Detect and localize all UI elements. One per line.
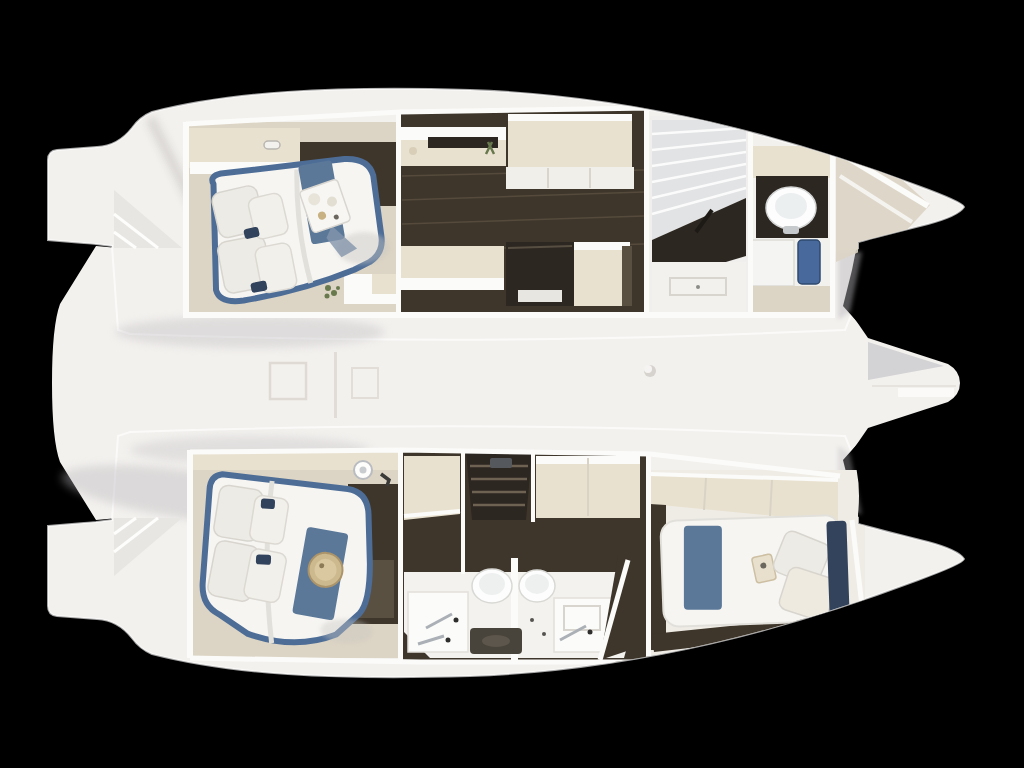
accent-cushion — [256, 554, 272, 565]
shower-room — [650, 116, 748, 314]
toilet-room — [752, 146, 832, 312]
sink-drain — [360, 467, 367, 474]
ceiling-light — [264, 141, 280, 149]
accent-cushion — [261, 498, 276, 509]
wall-stairs — [531, 452, 535, 522]
inner-bottom-wall — [183, 312, 835, 318]
seat-top-edge — [574, 242, 630, 250]
toilet-lid — [775, 193, 807, 219]
catamaran-floorplan-render — [0, 0, 1024, 768]
settee — [506, 167, 634, 189]
bowsprit-step — [898, 388, 954, 397]
toilet-floor — [752, 286, 830, 312]
twin-bathrooms — [402, 452, 650, 662]
wall-corridor-shower — [644, 110, 649, 316]
cabin-bench-top — [372, 274, 400, 294]
faucet-knob — [588, 630, 593, 635]
stair-hatch — [490, 458, 512, 468]
toilet-cabinet — [752, 240, 794, 286]
bed-runner — [684, 526, 722, 610]
wall-cabin-corridor — [396, 112, 401, 318]
desk-seat — [574, 242, 630, 306]
guest-cabin — [190, 452, 400, 658]
sink-drain — [696, 285, 700, 289]
floor-drain — [530, 618, 534, 622]
bathmat-weave — [482, 635, 510, 647]
faucet-knob — [454, 618, 459, 623]
toilet-left-lid — [479, 573, 505, 595]
deck-seam — [334, 352, 337, 418]
faucet-knob — [446, 638, 451, 643]
floorplan-canvas — [0, 0, 1024, 768]
headboard-navy — [826, 521, 849, 616]
wall-corridor — [461, 452, 465, 574]
bottom-hull-interior — [187, 450, 865, 662]
toilet-right-lid — [525, 574, 549, 594]
lower-cabinet-front — [398, 278, 504, 290]
cabin-left-wall — [183, 122, 189, 316]
mast-step-highlight — [644, 365, 652, 373]
cabin-left-wall — [187, 450, 193, 658]
side-cabinet — [508, 121, 632, 167]
blue-mat — [798, 240, 820, 284]
aft-bed — [660, 515, 850, 629]
deck-shadow-forward — [115, 316, 385, 348]
desk-drawer — [518, 290, 562, 302]
lower-cabinet — [398, 246, 504, 282]
toilet-right-wall — [830, 142, 835, 316]
galley-corridor — [398, 110, 646, 318]
wall-shower-toilet — [748, 116, 753, 316]
toilet-hinge — [783, 226, 799, 234]
guest-bed — [200, 474, 380, 649]
floor-drain — [542, 632, 546, 636]
owner-cabin — [186, 122, 400, 316]
seat-side — [622, 246, 632, 306]
wall-bathroom-aft — [646, 454, 651, 658]
vanity-cup — [409, 147, 417, 155]
wall-cabin-bathroom — [398, 450, 403, 662]
bed-tray — [751, 554, 776, 584]
